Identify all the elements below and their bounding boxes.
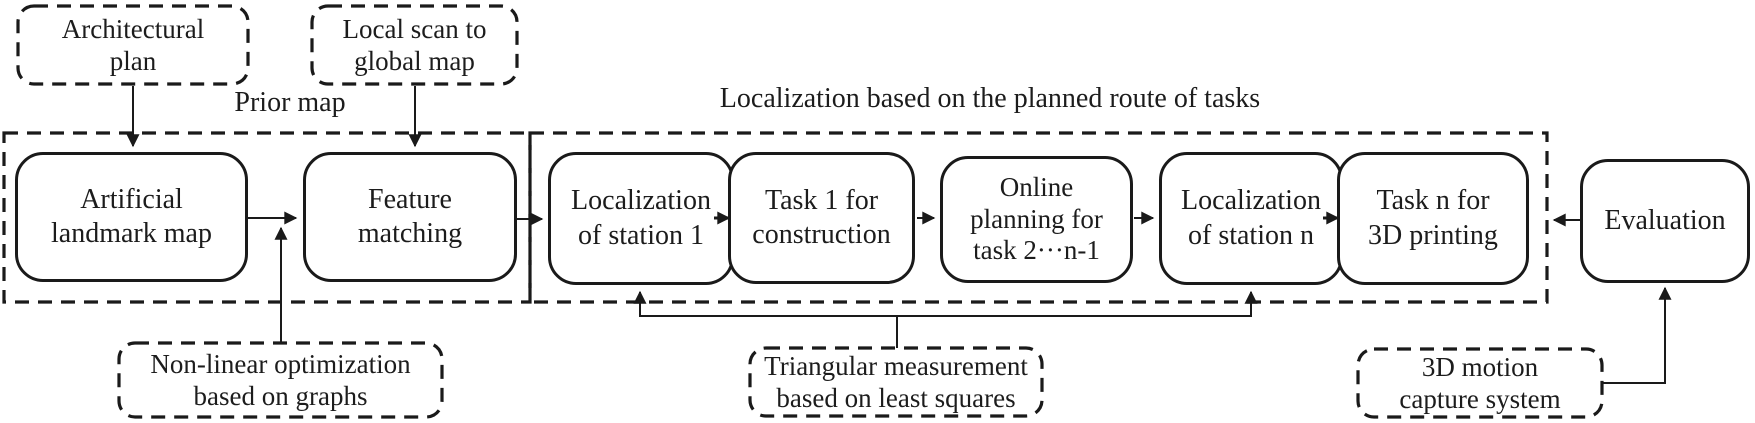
node-label: landmark map xyxy=(51,217,212,251)
node-label: 3D printing xyxy=(1368,219,1498,253)
localization-station-1-node: Localization of station 1 xyxy=(548,152,734,285)
node-label: Architectural xyxy=(62,13,204,45)
node-label: Feature xyxy=(368,183,452,217)
node-label: based on least squares xyxy=(776,382,1015,414)
node-label: Online xyxy=(1000,172,1074,204)
prior-map-label: Prior map xyxy=(175,88,405,119)
motion-capture-node: 3D motion capture system xyxy=(1358,349,1602,417)
node-label: Triangular measurement xyxy=(764,350,1028,382)
node-label: of station 1 xyxy=(578,219,704,253)
node-label: construction xyxy=(752,218,890,252)
task-n-3d-printing-node: Task n for 3D printing xyxy=(1337,152,1529,285)
node-label: global map xyxy=(354,45,475,77)
node-label: of station n xyxy=(1188,219,1314,253)
online-planning-node: Online planning for task 2···n-1 xyxy=(940,156,1133,283)
node-label: matching xyxy=(358,217,462,251)
task-1-construction-node: Task 1 for construction xyxy=(728,152,915,284)
localization-route-label: Localization based on the planned route … xyxy=(640,84,1340,115)
node-label: Localization xyxy=(1181,184,1321,218)
nonlinear-optimization-node: Non-linear optimization based on graphs xyxy=(119,343,442,417)
node-label: plan xyxy=(110,45,157,77)
triangular-measurement-node: Triangular measurement based on least sq… xyxy=(750,348,1042,416)
node-label: Evaluation xyxy=(1604,204,1725,238)
node-label: planning for xyxy=(970,204,1103,236)
node-label: task 2···n-1 xyxy=(973,235,1100,267)
architectural-plan-node: Architectural plan xyxy=(18,6,248,84)
node-label: capture system xyxy=(1399,383,1560,415)
feature-matching-node: Feature matching xyxy=(303,152,517,282)
node-label: 3D motion xyxy=(1422,351,1538,383)
node-label: Localization xyxy=(571,184,711,218)
node-label: based on graphs xyxy=(194,380,368,412)
node-label: Local scan to xyxy=(343,13,487,45)
node-label: Task 1 for xyxy=(765,184,878,218)
node-label: Artificial xyxy=(80,183,183,217)
diagram-canvas: Prior map Localization based on the plan… xyxy=(0,0,1755,423)
local-scan-node: Local scan to global map xyxy=(312,6,517,84)
evaluation-node: Evaluation xyxy=(1580,159,1750,283)
artificial-landmark-map-node: Artificial landmark map xyxy=(15,152,248,282)
node-label: Task n for xyxy=(1376,184,1489,218)
localization-station-n-node: Localization of station n xyxy=(1159,152,1343,285)
node-label: Non-linear optimization xyxy=(150,348,410,380)
